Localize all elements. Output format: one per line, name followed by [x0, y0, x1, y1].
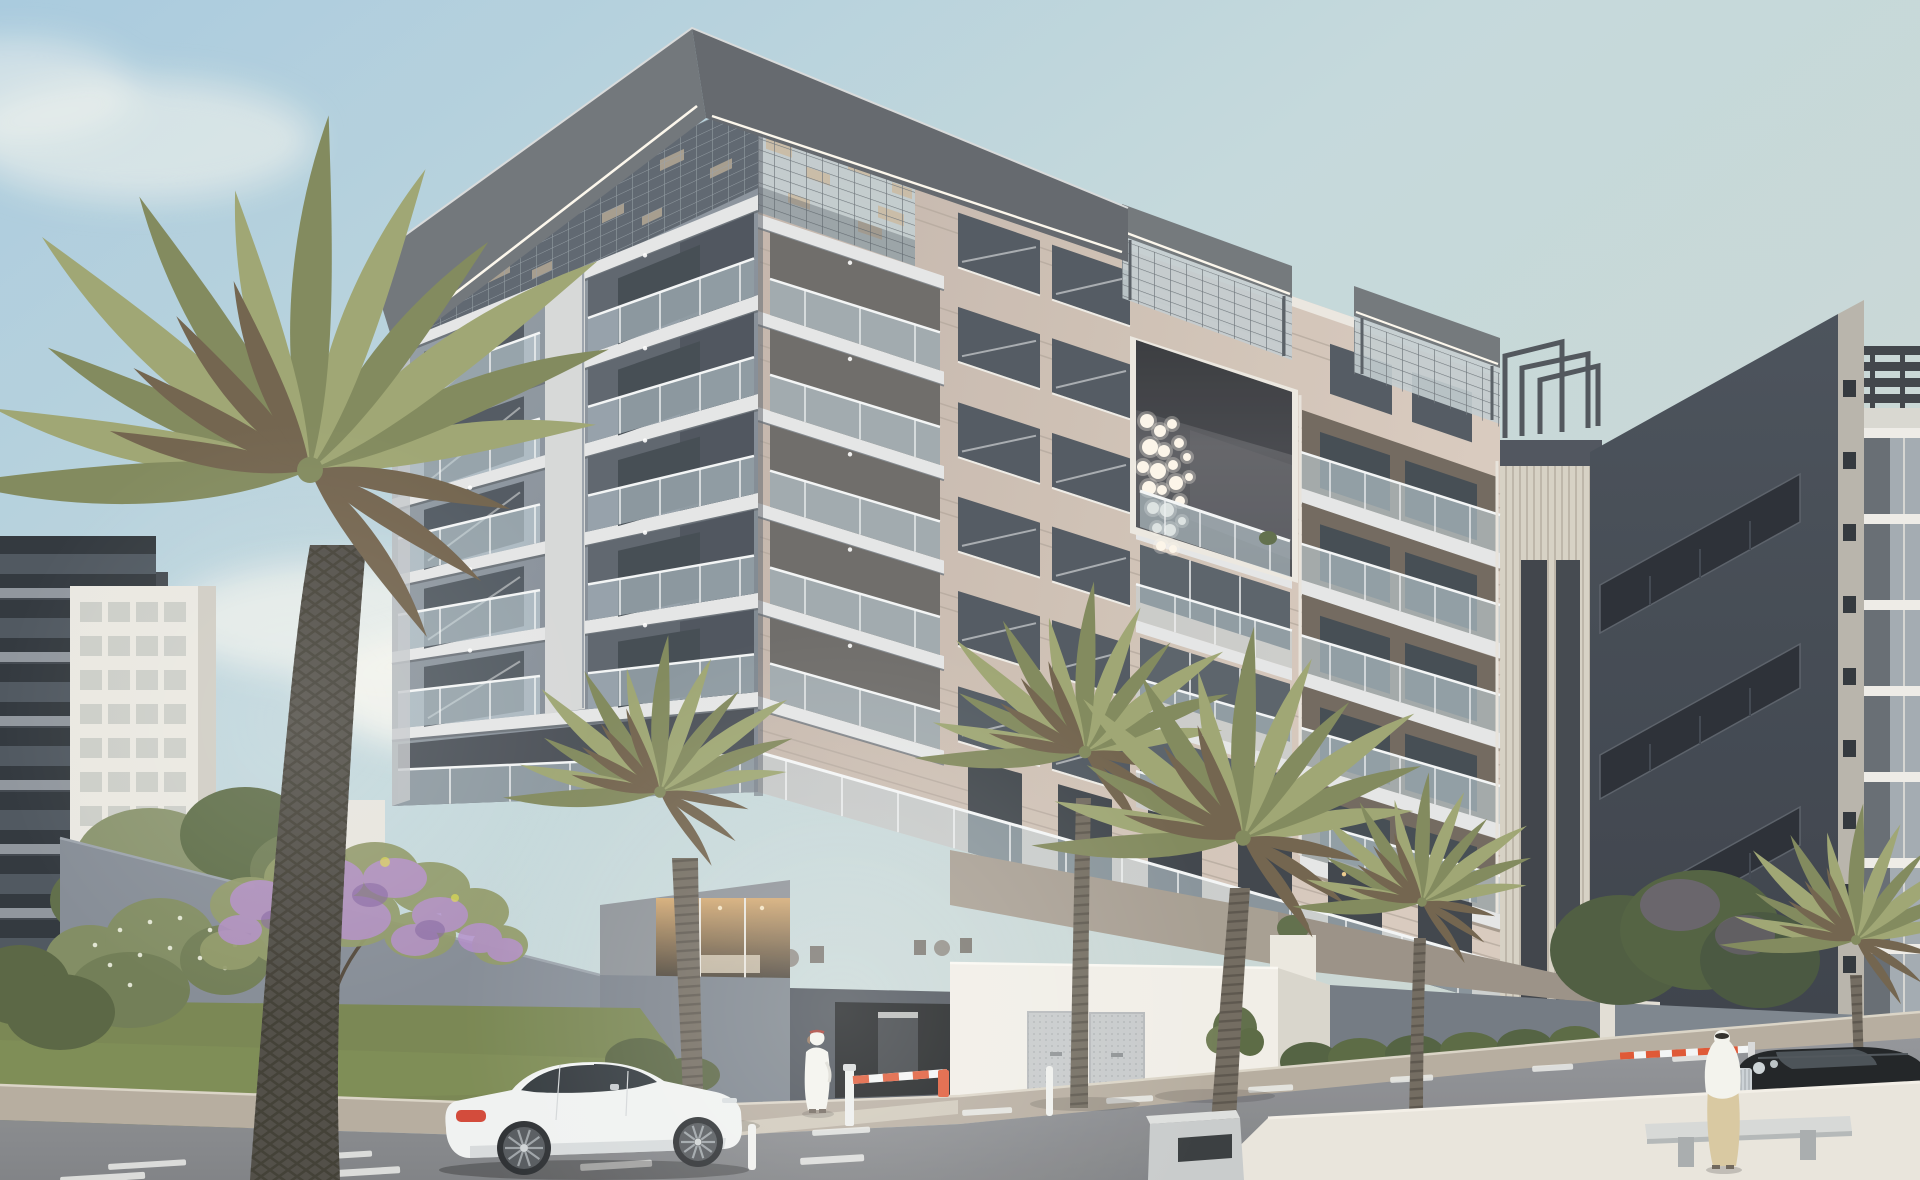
architectural-render	[0, 0, 1920, 1180]
render-stage	[0, 0, 1920, 1180]
atmosphere-overlays	[0, 0, 1920, 1180]
